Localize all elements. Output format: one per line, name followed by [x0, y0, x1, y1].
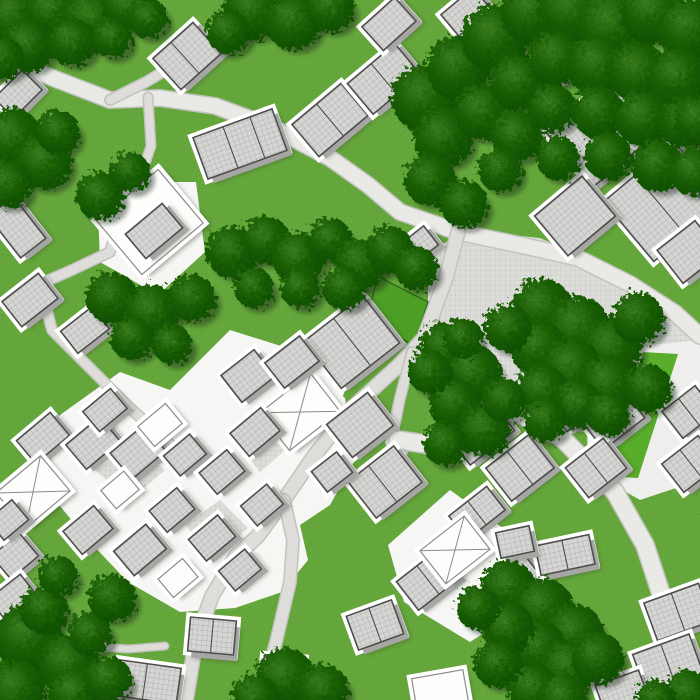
tree: [612, 292, 664, 344]
tree: [110, 316, 154, 360]
tree: [322, 266, 366, 310]
tree: [456, 586, 500, 630]
site-plan: [0, 0, 700, 700]
tree: [48, 18, 96, 66]
tree: [484, 304, 532, 352]
tree: [624, 364, 672, 412]
tree: [523, 398, 567, 442]
tree: [38, 556, 78, 596]
tree: [206, 10, 250, 54]
tree: [482, 378, 526, 422]
tree: [528, 84, 576, 132]
tree: [478, 148, 522, 192]
tree: [474, 640, 522, 688]
tree: [440, 180, 488, 228]
tree: [408, 350, 452, 394]
tree: [92, 18, 132, 58]
tree: [234, 268, 274, 308]
tree: [443, 318, 483, 358]
tree: [110, 152, 150, 192]
tree: [586, 392, 630, 436]
tree: [36, 110, 80, 154]
tree: [280, 268, 320, 308]
tree: [152, 324, 192, 364]
tree: [394, 246, 438, 290]
tree: [536, 136, 580, 180]
tree: [168, 274, 216, 322]
site-plan-map: [0, 0, 700, 700]
tree: [572, 632, 624, 684]
tree: [584, 132, 632, 180]
tree: [423, 422, 467, 466]
tree: [88, 574, 136, 622]
building-hatched: [183, 612, 242, 662]
